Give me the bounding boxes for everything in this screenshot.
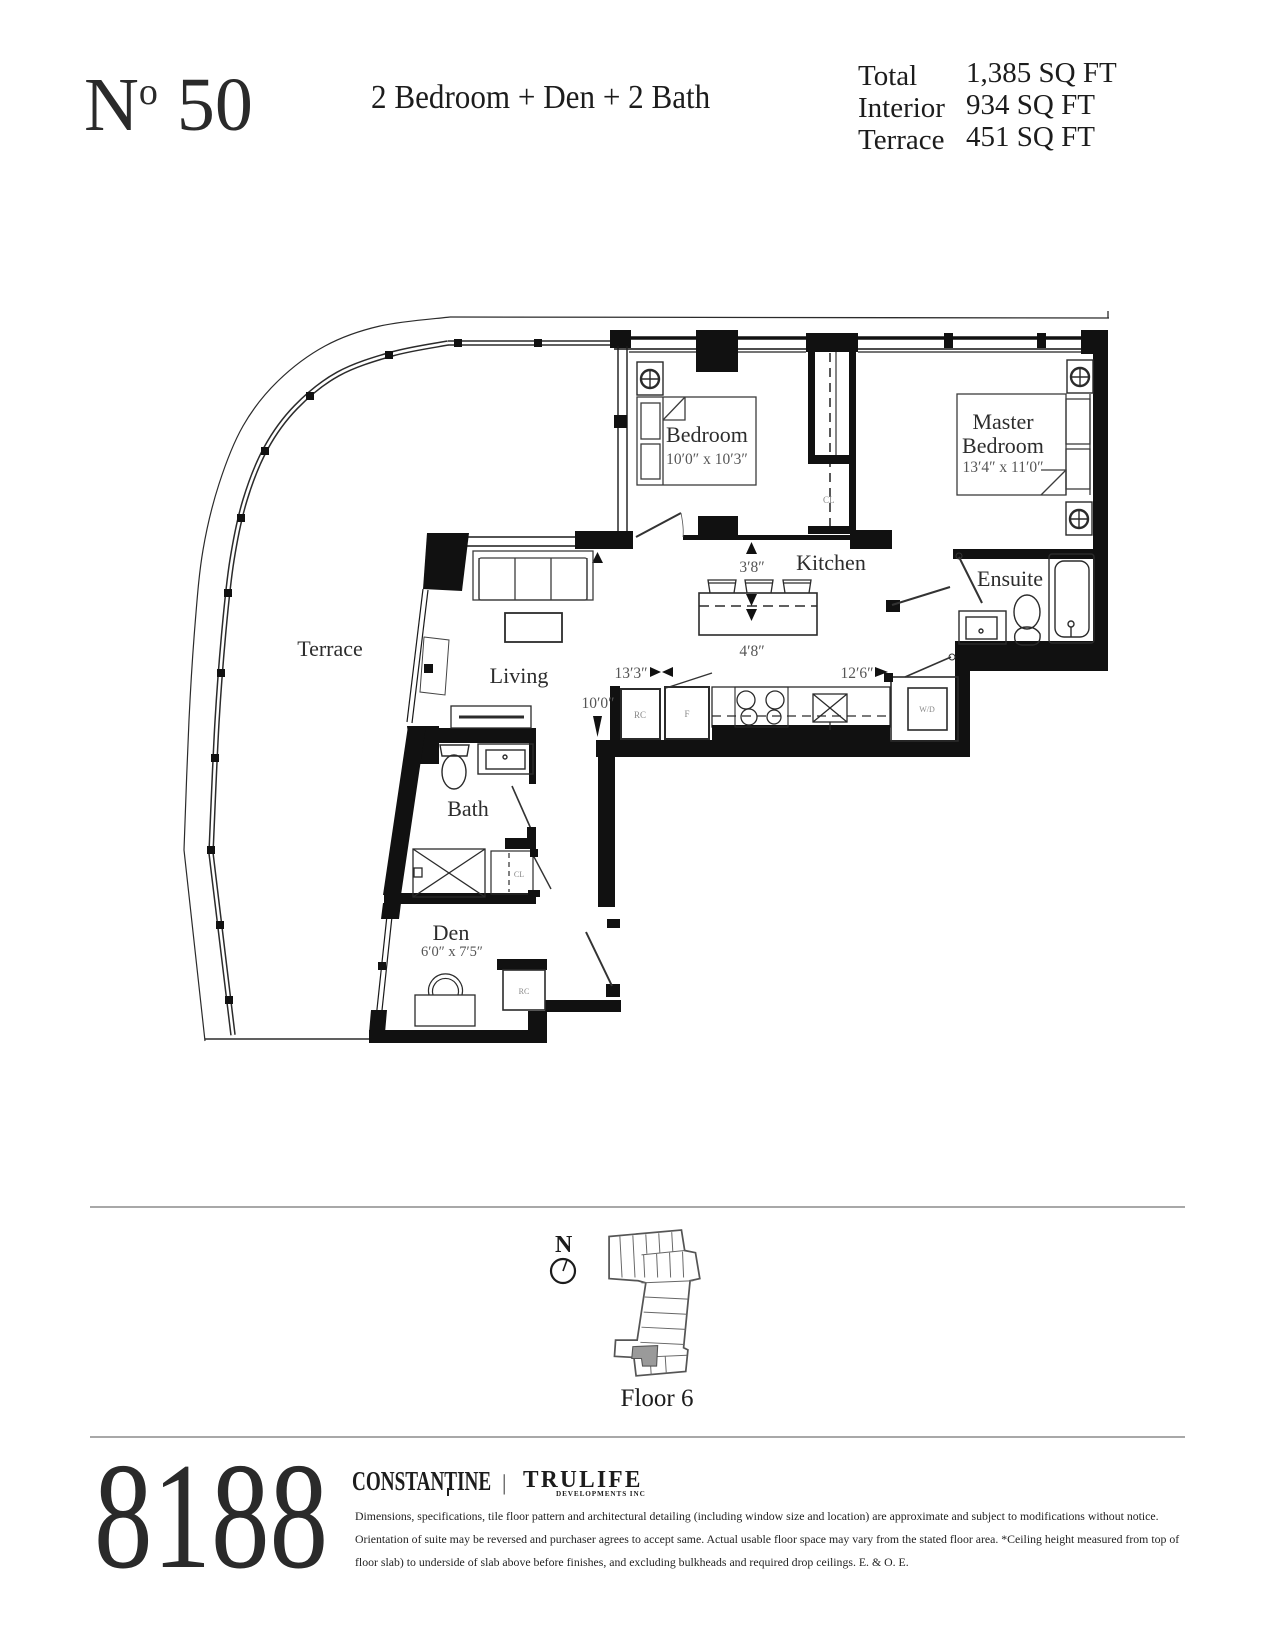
svg-text:Master: Master bbox=[972, 409, 1034, 434]
svg-text:Terrace: Terrace bbox=[297, 636, 363, 661]
svg-text:Bedroom: Bedroom bbox=[666, 422, 748, 447]
svg-text:Bedroom: Bedroom bbox=[962, 433, 1044, 458]
svg-text:F: F bbox=[684, 709, 689, 719]
svg-text:W/D: W/D bbox=[919, 705, 935, 714]
svg-text:3′8″: 3′8″ bbox=[739, 559, 764, 576]
svg-text:10′0″: 10′0″ bbox=[581, 695, 614, 712]
svg-text:RC: RC bbox=[519, 987, 530, 996]
svg-text:10′0″ x 10′3″: 10′0″ x 10′3″ bbox=[666, 451, 748, 468]
svg-text:CL: CL bbox=[514, 870, 524, 879]
svg-text:Ensuite: Ensuite bbox=[977, 566, 1043, 591]
svg-text:Living: Living bbox=[490, 663, 549, 688]
svg-text:Bath: Bath bbox=[447, 796, 489, 821]
svg-text:CL: CL bbox=[823, 495, 835, 505]
svg-text:12′6″: 12′6″ bbox=[840, 665, 873, 682]
svg-text:4′8″: 4′8″ bbox=[739, 643, 764, 660]
svg-text:N: N bbox=[555, 1232, 573, 1258]
svg-text:6′0″ x 7′5″: 6′0″ x 7′5″ bbox=[421, 944, 483, 960]
svg-text:RC: RC bbox=[634, 710, 646, 720]
svg-text:13′4″ x 11′0″: 13′4″ x 11′0″ bbox=[962, 459, 1043, 476]
svg-text:Den: Den bbox=[433, 920, 470, 945]
svg-text:Kitchen: Kitchen bbox=[796, 550, 866, 575]
svg-text:13′3″: 13′3″ bbox=[614, 665, 647, 682]
